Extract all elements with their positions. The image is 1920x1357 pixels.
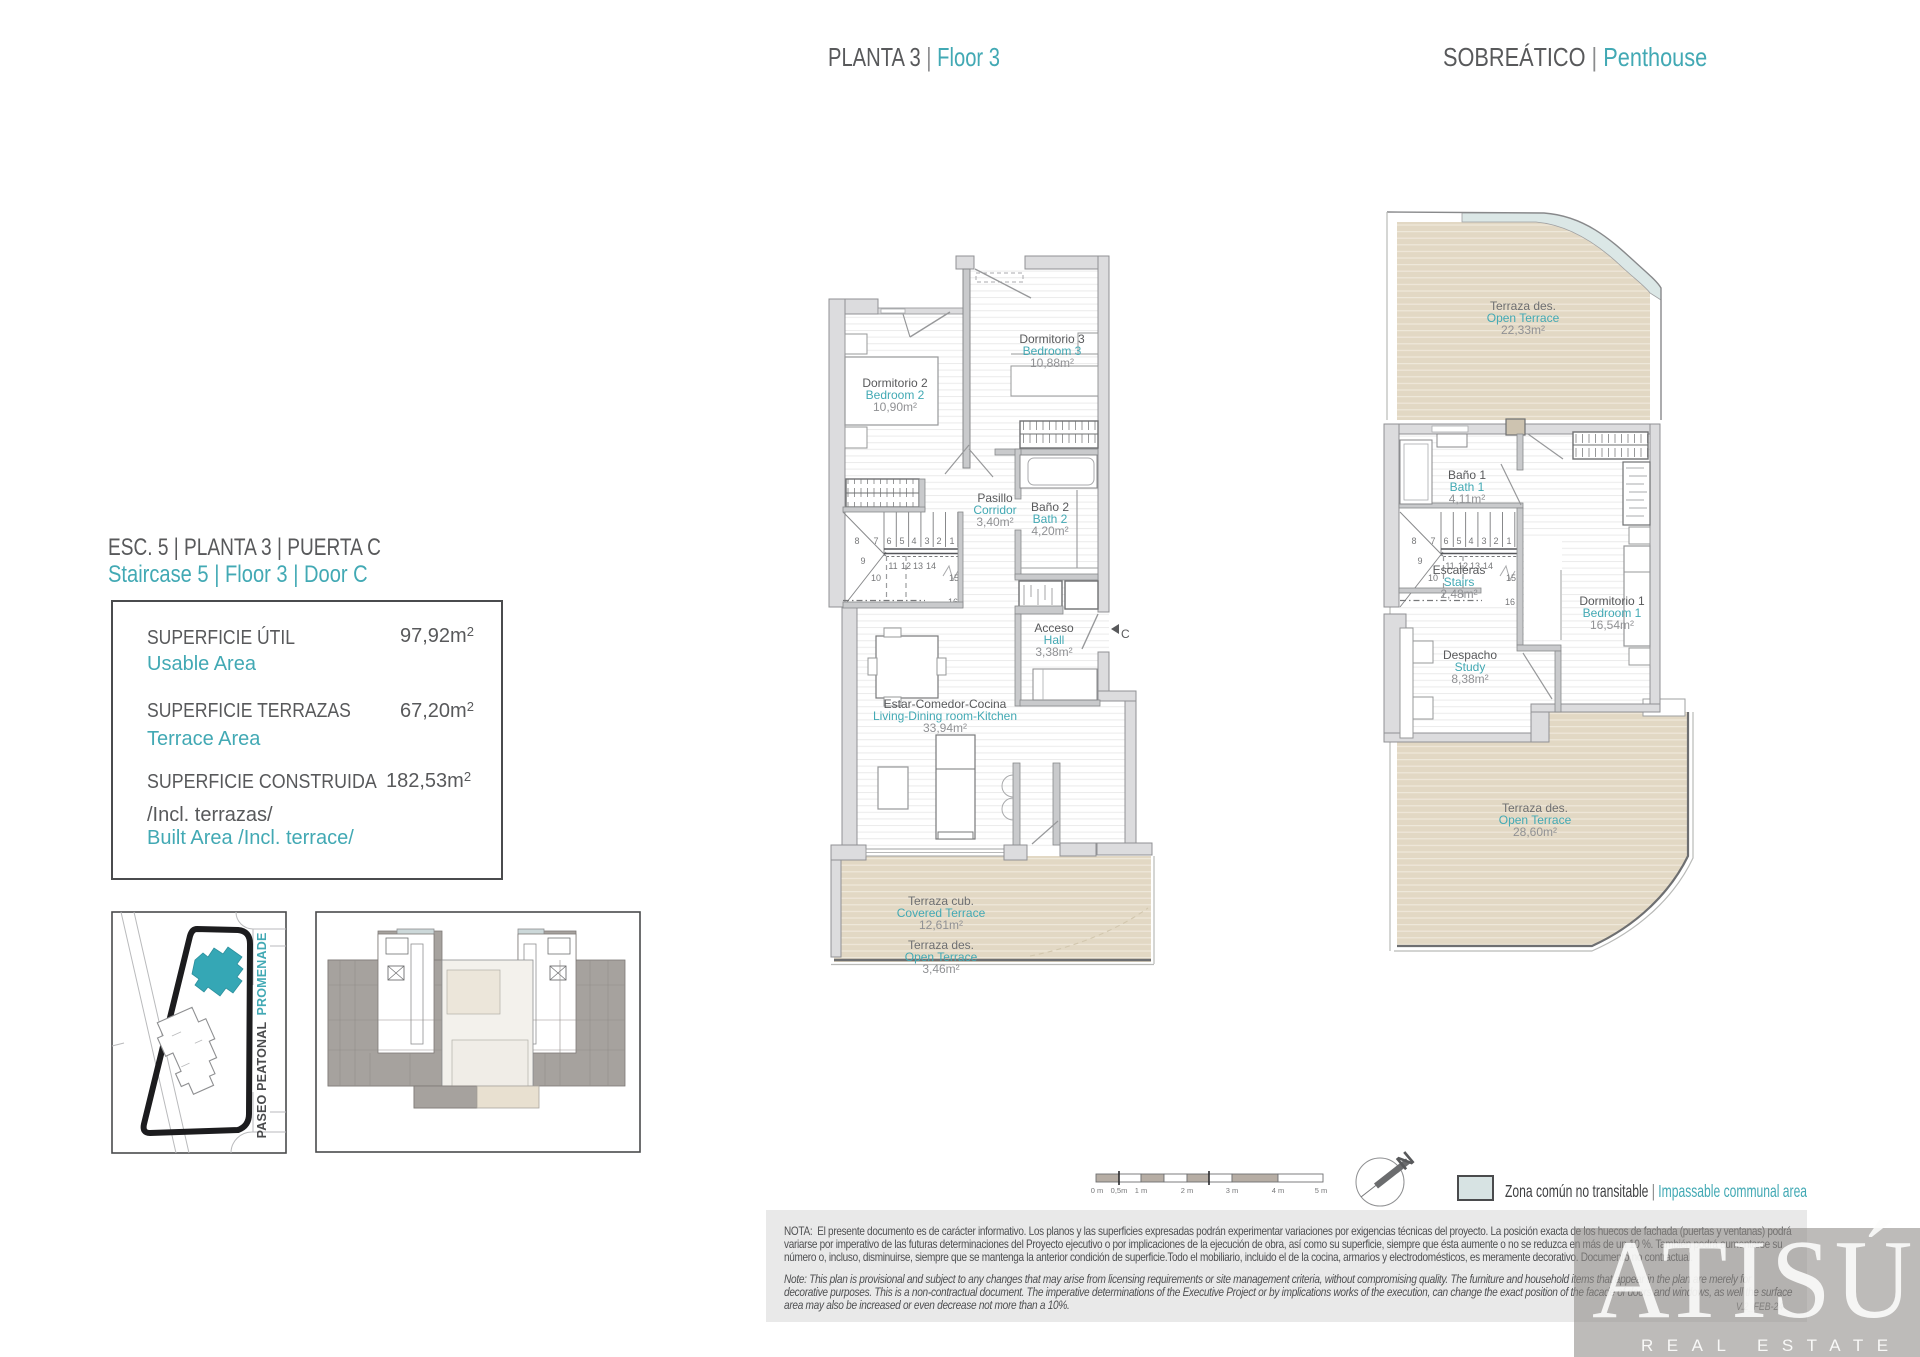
svg-text:10: 10 [871, 573, 881, 583]
svg-text:16,54m²: 16,54m² [1590, 618, 1634, 632]
svg-text:7: 7 [873, 536, 878, 546]
svg-text:2: 2 [936, 536, 941, 546]
svg-text:3,46m²: 3,46m² [922, 962, 959, 976]
svg-text:12,61m²: 12,61m² [919, 918, 963, 932]
svg-text:5: 5 [899, 536, 904, 546]
svg-text:10,88m²: 10,88m² [1030, 356, 1074, 370]
svg-text:2 m: 2 m [1181, 1186, 1194, 1195]
svg-text:12: 12 [901, 561, 911, 571]
svg-text:0,5m: 0,5m [1111, 1186, 1128, 1195]
svg-text:33,94m²: 33,94m² [923, 721, 967, 735]
svg-text:8: 8 [854, 536, 859, 546]
svg-text:28,60m²: 28,60m² [1513, 825, 1557, 839]
svg-text:0 m: 0 m [1091, 1186, 1104, 1195]
svg-text:4,20m²: 4,20m² [1031, 524, 1068, 538]
svg-text:PASEO PEATONAL: PASEO PEATONAL [255, 1021, 269, 1138]
svg-text:11: 11 [888, 561, 897, 571]
svg-text:4 m: 4 m [1272, 1186, 1285, 1195]
svg-text:1 m: 1 m [1135, 1186, 1148, 1195]
svg-text:13: 13 [913, 561, 923, 571]
svg-text:3,40m²: 3,40m² [976, 515, 1013, 529]
svg-text:10,90m²: 10,90m² [873, 400, 917, 414]
svg-text:3,38m²: 3,38m² [1035, 645, 1072, 659]
svg-text:4,11m²: 4,11m² [1449, 492, 1485, 506]
svg-text:4: 4 [911, 536, 916, 546]
svg-text:C: C [1121, 627, 1130, 641]
svg-text:3: 3 [924, 536, 929, 546]
svg-text:15: 15 [949, 573, 959, 583]
svg-text:1: 1 [949, 536, 954, 546]
svg-text:PROMENADE: PROMENADE [255, 932, 269, 1015]
svg-text:5 m: 5 m [1315, 1186, 1328, 1195]
svg-text:14: 14 [926, 561, 936, 571]
svg-text:8,38m²: 8,38m² [1451, 672, 1488, 686]
svg-text:22,33m²: 22,33m² [1501, 323, 1545, 337]
svg-text:2,48m²: 2,48m² [1440, 587, 1477, 601]
svg-text:9: 9 [860, 556, 865, 566]
svg-text:6: 6 [886, 536, 891, 546]
svg-text:3 m: 3 m [1226, 1186, 1239, 1195]
